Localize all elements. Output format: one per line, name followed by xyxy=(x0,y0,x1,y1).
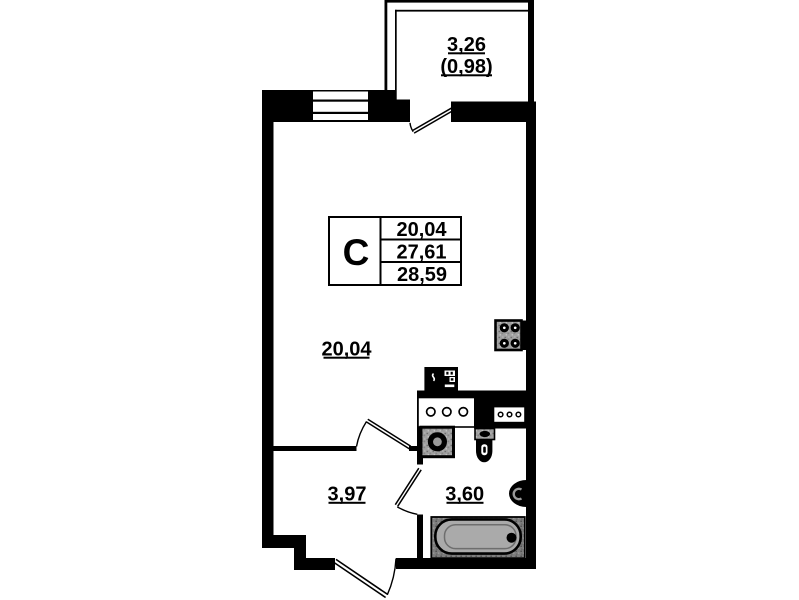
svg-text:20,04: 20,04 xyxy=(396,219,447,241)
svg-text:28,59: 28,59 xyxy=(397,264,447,286)
svg-text:27,61: 27,61 xyxy=(396,242,446,264)
svg-text:C: C xyxy=(343,232,370,273)
